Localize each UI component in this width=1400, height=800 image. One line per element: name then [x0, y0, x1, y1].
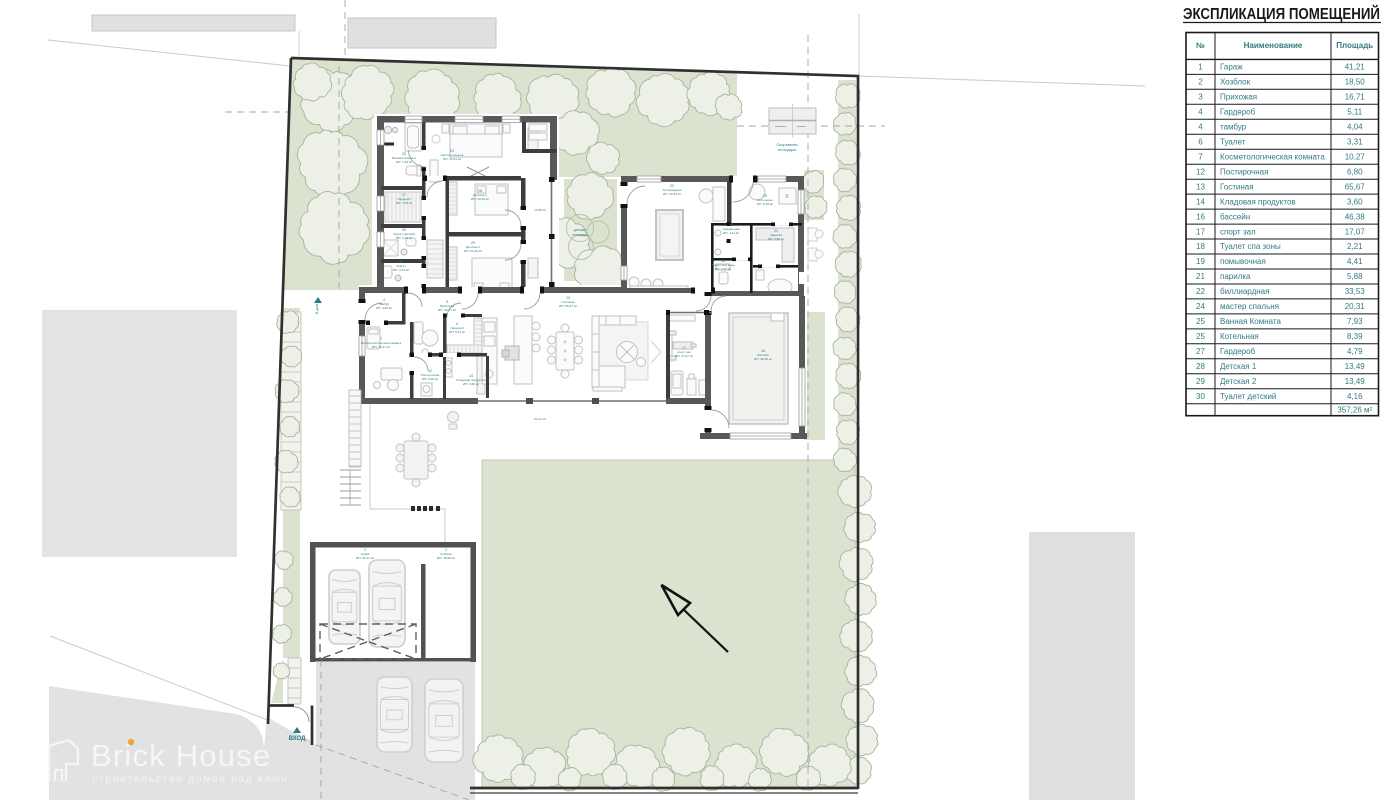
svg-text:4: 4 — [1198, 123, 1203, 132]
svg-text:27: 27 — [1196, 347, 1205, 356]
svg-text:13,49: 13,49 — [1345, 377, 1366, 386]
svg-text:Туалет детский: Туалет детский — [1220, 392, 1276, 401]
svg-text:21: 21 — [1196, 272, 1205, 281]
svg-text:помывочная: помывочная — [1220, 257, 1266, 266]
svg-text:Площадь: Площадь — [1336, 41, 1373, 50]
svg-text:ИП: 4,41 м²: ИП: 4,41 м² — [723, 231, 739, 235]
svg-text:Brick House: Brick House — [91, 738, 271, 773]
svg-text:22: 22 — [1196, 287, 1205, 296]
svg-text:Наименование: Наименование — [1244, 41, 1303, 50]
svg-text:Спортивная: Спортивная — [776, 143, 797, 147]
svg-text:ВХОД: ВХОД — [289, 736, 307, 742]
svg-text:13,49: 13,49 — [1345, 362, 1366, 371]
svg-text:ИП: 4,79 м²: ИП: 4,79 м² — [396, 201, 412, 205]
svg-text:14: 14 — [1196, 197, 1205, 206]
svg-text:ИП: 18,50 м²: ИП: 18,50 м² — [437, 556, 455, 560]
svg-text:спорт зал: спорт зал — [1220, 227, 1256, 236]
svg-text:биллиардная: биллиардная — [1220, 287, 1269, 296]
svg-text:10,27: 10,27 — [1345, 152, 1366, 161]
svg-text:ИП: 4,04 м²: ИП: 4,04 м² — [376, 306, 392, 310]
svg-text:65,67: 65,67 — [1345, 182, 1366, 191]
svg-text:Детская 2: Детская 2 — [1220, 377, 1257, 386]
svg-text:24: 24 — [1196, 302, 1205, 311]
svg-text:2: 2 — [1198, 78, 1203, 87]
svg-text:бассейн: бассейн — [1220, 212, 1250, 221]
svg-text:ИП: 17,07 м²: ИП: 17,07 м² — [675, 354, 693, 358]
svg-text:4,79: 4,79 — [1347, 347, 1363, 356]
svg-text:41,21: 41,21 — [1345, 63, 1366, 72]
svg-text:19: 19 — [1196, 257, 1205, 266]
svg-text:4,41: 4,41 — [1347, 257, 1363, 266]
svg-text:8,39: 8,39 — [1347, 332, 1363, 341]
svg-text:13: 13 — [1196, 182, 1205, 191]
svg-text:14,08 м²: 14,08 м² — [534, 208, 546, 212]
svg-text:29: 29 — [1196, 377, 1205, 386]
svg-text:6: 6 — [1198, 137, 1203, 146]
svg-text:площадка: площадка — [572, 233, 588, 237]
svg-text:ИП: 16,71 м²: ИП: 16,71 м² — [438, 308, 456, 312]
svg-text:ИП: 20,31 м²: ИП: 20,31 м² — [443, 157, 461, 161]
svg-text:16,71: 16,71 — [1345, 93, 1366, 102]
svg-text:ИП: 33,53 м²: ИП: 33,53 м² — [663, 192, 681, 196]
svg-text:12: 12 — [1196, 167, 1205, 176]
svg-text:парилка: парилка — [1220, 272, 1251, 281]
svg-text:20,31: 20,31 — [1345, 302, 1366, 311]
svg-text:ИП: 3,31 м²: ИП: 3,31 м² — [393, 268, 409, 272]
svg-text:3,60: 3,60 — [1347, 197, 1363, 206]
svg-text:В дом: В дом — [315, 303, 319, 313]
svg-text:2,21: 2,21 — [1347, 242, 1363, 251]
svg-text:46,38: 46,38 — [1345, 212, 1366, 221]
svg-text:ИП: 7,93 м²: ИП: 7,93 м² — [396, 160, 412, 164]
svg-text:18: 18 — [1196, 242, 1205, 251]
svg-text:ИП: 65,67 м²: ИП: 65,67 м² — [559, 304, 577, 308]
svg-text:6,80: 6,80 — [1347, 167, 1363, 176]
svg-text:30: 30 — [1196, 392, 1205, 401]
svg-text:Гостиная: Гостиная — [1220, 182, 1254, 191]
svg-text:25: 25 — [1196, 332, 1205, 341]
svg-text:строительство домов под ключ: строительство домов под ключ — [92, 773, 288, 785]
svg-text:ИП: 5,11 м²: ИП: 5,11 м² — [449, 330, 465, 334]
svg-text:ИП: 46,38 м²: ИП: 46,38 м² — [754, 357, 772, 361]
svg-text:4: 4 — [1198, 108, 1203, 117]
svg-text:1: 1 — [1198, 63, 1203, 72]
svg-text:ИП: 4,16 м²: ИП: 4,16 м² — [396, 236, 412, 240]
svg-text:Косметологическая комната: Косметологическая комната — [1220, 152, 1325, 161]
svg-text:№: № — [1196, 41, 1205, 50]
svg-text:Туалет: Туалет — [1220, 137, 1246, 146]
svg-text:25: 25 — [1196, 317, 1205, 326]
svg-text:Гардероб: Гардероб — [1220, 108, 1256, 117]
svg-text:3: 3 — [1198, 93, 1203, 102]
svg-text:тамбур: тамбур — [1220, 123, 1247, 132]
svg-text:ИП: 2,21 м²: ИП: 2,21 м² — [715, 267, 731, 271]
svg-text:5,88: 5,88 — [1347, 272, 1363, 281]
svg-text:ИП: 5,88 м²: ИП: 5,88 м² — [768, 237, 784, 241]
svg-text:17,07: 17,07 — [1345, 227, 1366, 236]
svg-text:3,31: 3,31 — [1347, 137, 1363, 146]
svg-text:Котельная: Котельная — [1220, 332, 1259, 341]
svg-text:ИП: 8,39 м²: ИП: 8,39 м² — [757, 202, 773, 206]
svg-text:ИП: 13,49 м²: ИП: 13,49 м² — [471, 197, 489, 201]
svg-text:ИП: 41,21 м²: ИП: 41,21 м² — [356, 556, 374, 560]
svg-text:357,26 м²: 357,26 м² — [1337, 405, 1372, 414]
svg-text:5,11: 5,11 — [1347, 108, 1363, 117]
svg-text:детская: детская — [574, 228, 586, 232]
svg-text:4,04: 4,04 — [1347, 123, 1363, 132]
svg-text:Гараж: Гараж — [1220, 63, 1243, 72]
svg-text:Постирочная: Постирочная — [1220, 167, 1268, 176]
svg-text:ИП: 6,80 м²: ИП: 6,80 м² — [422, 377, 438, 381]
svg-text:4,16: 4,16 — [1347, 392, 1363, 401]
svg-text:Детская 1: Детская 1 — [1220, 362, 1257, 371]
svg-text:7,93: 7,93 — [1347, 317, 1363, 326]
svg-text:Туалет спа зоны: Туалет спа зоны — [1220, 242, 1281, 251]
svg-text:18,50: 18,50 — [1345, 78, 1366, 87]
svg-text:Хозблок: Хозблок — [1220, 78, 1251, 87]
svg-text:Кладовая продуктов: Кладовая продуктов — [1220, 197, 1296, 206]
svg-text:ИП: 10,27 м²: ИП: 10,27 м² — [372, 345, 390, 349]
svg-text:Гардероб: Гардероб — [1220, 347, 1256, 356]
svg-text:28: 28 — [1196, 362, 1205, 371]
svg-text:площадка: площадка — [778, 148, 797, 152]
svg-text:Прихожая: Прихожая — [1220, 93, 1257, 102]
svg-text:мастер спальня: мастер спальня — [1220, 302, 1279, 311]
svg-text:ИП: 3,60 м²: ИП: 3,60 м² — [463, 382, 479, 386]
svg-text:16: 16 — [1196, 212, 1205, 221]
svg-text:ЭКСПЛИКАЦИЯ ПОМЕЩЕНИЙ: ЭКСПЛИКАЦИЯ ПОМЕЩЕНИЙ — [1183, 5, 1380, 23]
svg-text:33,53: 33,53 — [1345, 287, 1366, 296]
svg-text:54,21 м²: 54,21 м² — [534, 417, 546, 421]
svg-text:7: 7 — [1198, 152, 1203, 161]
svg-text:Ванная Комната: Ванная Комната — [1220, 317, 1282, 326]
svg-text:ИП: 13,49 м²: ИП: 13,49 м² — [464, 249, 482, 253]
svg-text:17: 17 — [1196, 227, 1205, 236]
